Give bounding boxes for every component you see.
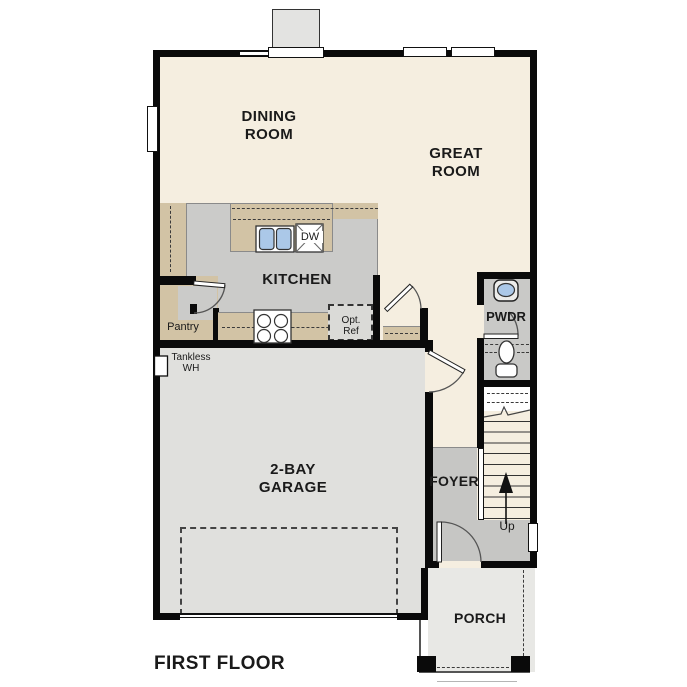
dishwasher-label: DW <box>297 231 323 243</box>
closet-dashed-2 <box>487 402 528 403</box>
porch-label: PORCH <box>450 610 510 626</box>
closet-dashed-1 <box>487 393 528 394</box>
fireplace-bumpout <box>272 9 320 52</box>
foyer-floor <box>433 448 477 561</box>
drop-zone-wall-stub <box>420 308 428 344</box>
powder-floor <box>484 279 530 380</box>
pantry-door-stop <box>190 304 197 314</box>
wall-porch-left <box>421 568 428 620</box>
upper-cabinets-dashed-1 <box>232 208 378 209</box>
drop-zone-dashed <box>385 333 423 334</box>
powder-vanity-dashed-2 <box>485 352 497 353</box>
pantry-wall-top <box>160 276 196 285</box>
kitchen-island <box>230 203 333 252</box>
kitchen-label: KITCHEN <box>237 271 357 289</box>
powder-room-label: PWDR <box>482 309 530 324</box>
understair-closet <box>484 387 530 411</box>
floor-plan: DINING ROOM GREAT ROOM KITCHEN 2-BAY GAR… <box>0 0 687 687</box>
porch-post-left <box>417 656 436 672</box>
porch-outline-left <box>419 620 421 657</box>
first-floor-title: FIRST FLOOR <box>154 653 334 675</box>
left-upper-cabinets-dashed <box>170 206 171 272</box>
upper-cabinets-dashed-2 <box>233 219 330 220</box>
wall-powder-left-lower <box>477 338 484 448</box>
wall-right <box>530 50 537 568</box>
pantry-label: Pantry <box>160 321 206 333</box>
up-label: Up <box>492 519 522 533</box>
window-dining-left <box>147 106 158 152</box>
kitchen-left-counter <box>160 203 187 278</box>
window-top-right-2 <box>451 47 495 57</box>
porch-step-line <box>437 681 517 682</box>
opt-ref-label: Opt. Ref <box>331 315 371 337</box>
wall-garage-right-upper <box>425 340 433 352</box>
foyer-label: FOYER <box>428 473 480 489</box>
garage-door-dashed <box>180 527 398 615</box>
porch-edge-dashed-right <box>523 570 524 656</box>
window-top-right-1 <box>403 47 447 57</box>
tankless-wh-label: Tankless WH <box>166 352 216 374</box>
window-fireplace <box>268 47 324 58</box>
pantry-interior <box>178 286 217 320</box>
wall-powder-left-upper <box>477 272 484 305</box>
great-room-label: GREAT ROOM <box>396 145 516 181</box>
wall-kitchen-garage <box>153 340 433 348</box>
powder-vanity-dashed-3 <box>517 352 529 353</box>
dining-room-label: DINING ROOM <box>204 108 334 144</box>
porch-post-right <box>511 656 530 672</box>
wall-powder-top <box>477 272 537 279</box>
wall-closet-top <box>477 380 537 387</box>
staircase <box>484 411 530 520</box>
wall-foyer-bottom-right <box>481 561 537 568</box>
wall-kitchen-right <box>373 275 380 345</box>
window-foyer-right <box>528 523 538 552</box>
porch-edge-dashed-bottom <box>437 667 509 668</box>
powder-vanity-dashed-1 <box>485 344 529 345</box>
foyer-boundary-top <box>433 447 477 448</box>
garage-door-panel-line <box>180 617 397 618</box>
wall-foyer-bottom-left <box>425 561 439 568</box>
garage-label: 2-BAY GARAGE <box>233 461 353 497</box>
